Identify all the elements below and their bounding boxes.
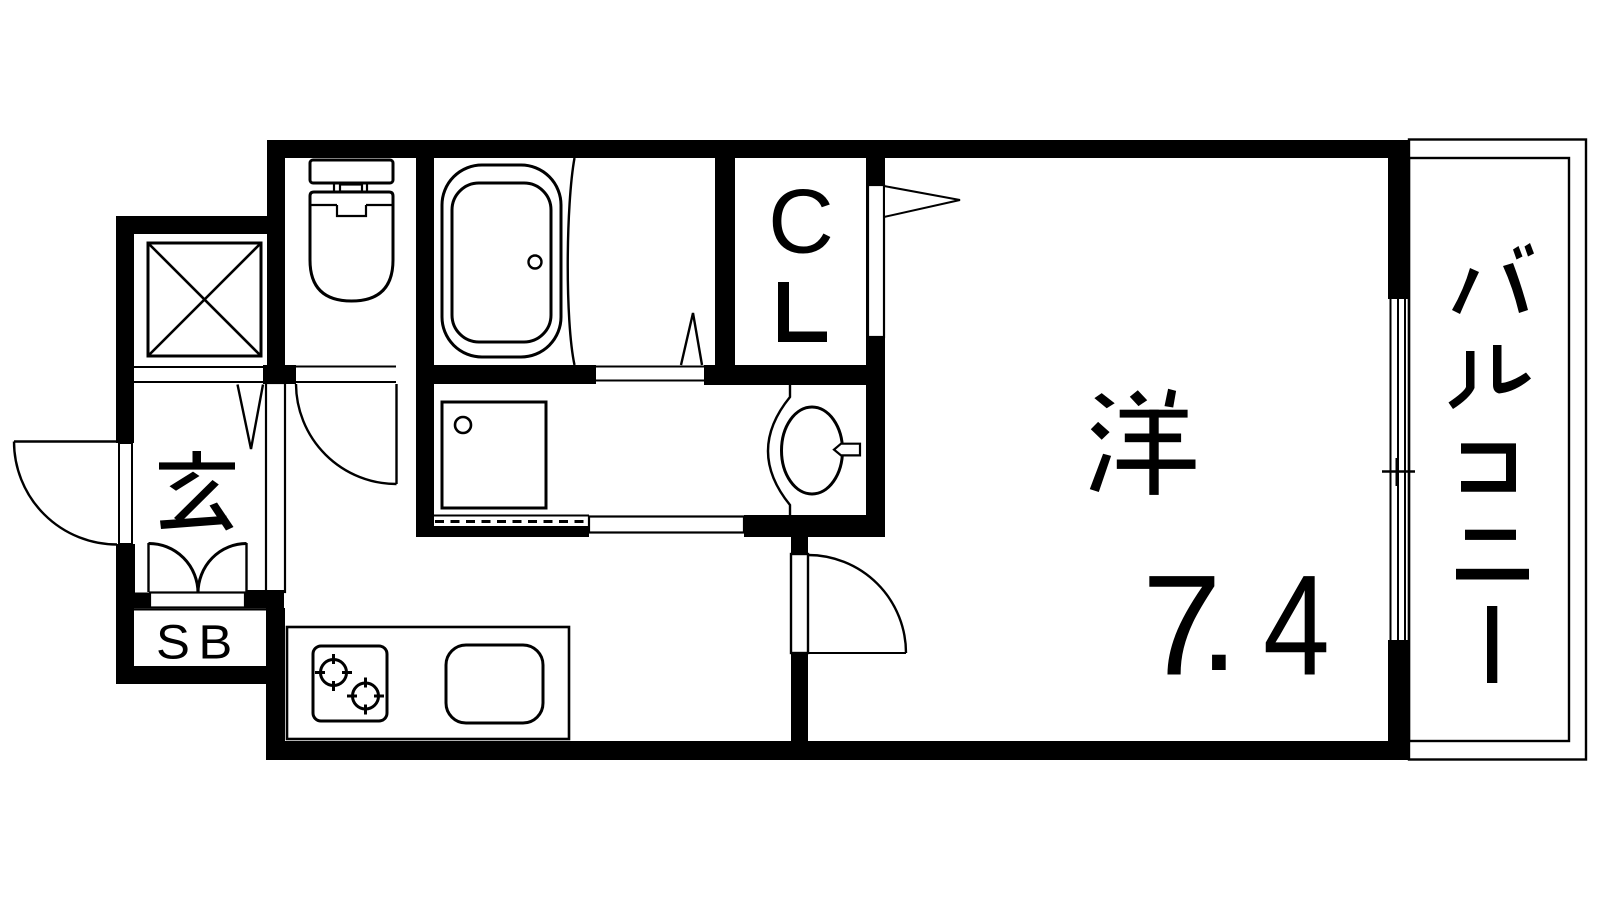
svg-text:.: . [1199, 542, 1239, 701]
svg-text:C: C [768, 172, 834, 273]
svg-text:SB: SB [156, 616, 241, 669]
svg-text:4: 4 [1263, 545, 1330, 705]
